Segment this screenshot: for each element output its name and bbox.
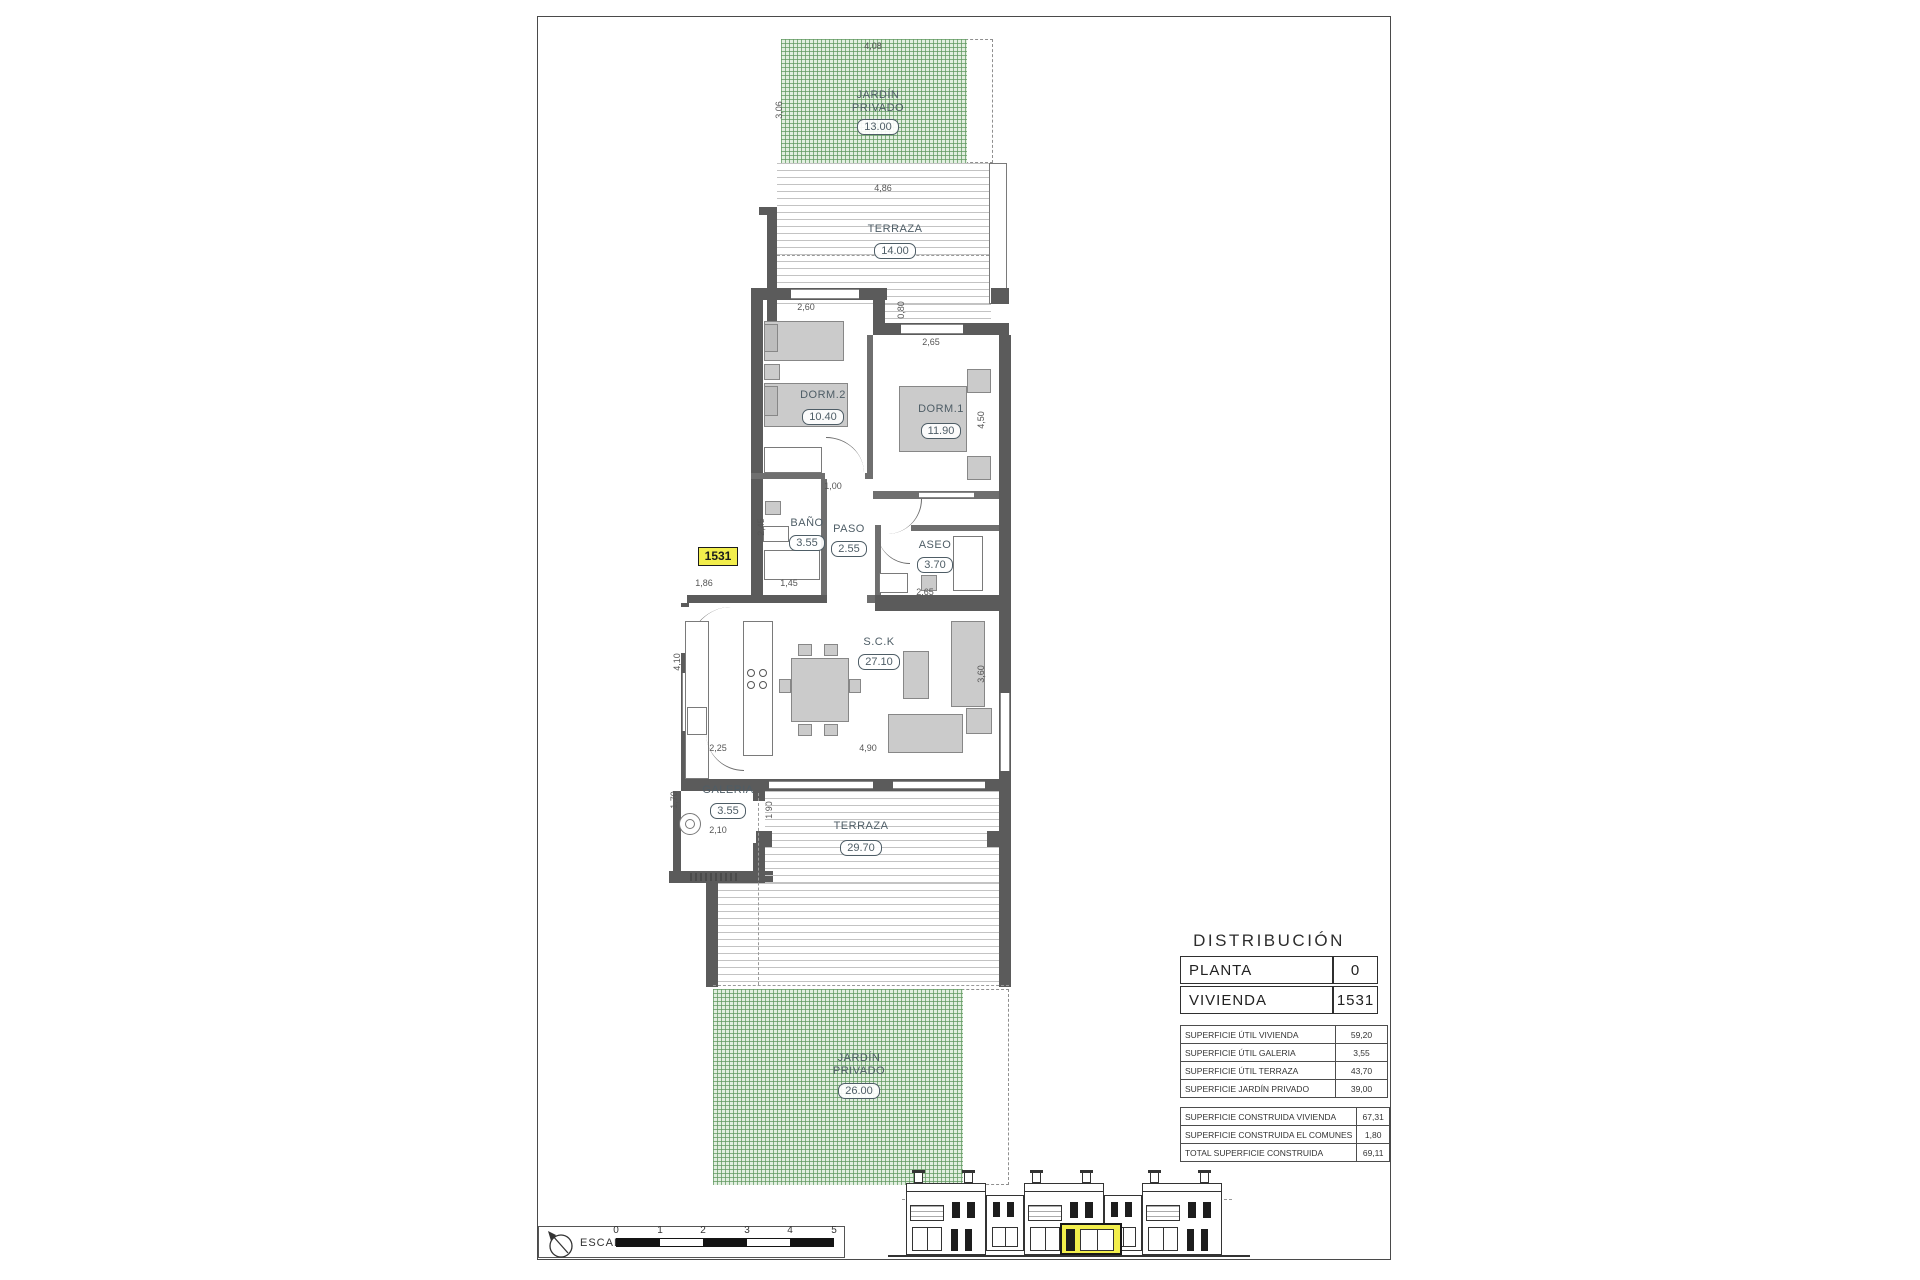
highlight-window-divider xyxy=(1097,1229,1098,1251)
dim-terrace-top-width: 4,86 xyxy=(841,183,925,193)
table-cell-label: TOTAL SUPERFICIE CONSTRUIDA xyxy=(1181,1144,1357,1162)
dorm1-window xyxy=(901,324,963,334)
kitchen-counter xyxy=(685,621,709,779)
dim-terrace-edge: 0,80 xyxy=(896,295,906,325)
scale-bar-segment xyxy=(703,1239,746,1246)
dorm2-bench xyxy=(764,447,822,473)
dorm2-bottom-wall xyxy=(751,473,825,479)
terrace-right-column xyxy=(991,288,1009,304)
chimney-cap xyxy=(1080,1170,1093,1173)
aseo-top-wall-b xyxy=(911,525,999,531)
table-row: TOTAL SUPERFICIE CONSTRUIDA69,11 xyxy=(1181,1144,1390,1162)
paso-wall-stub xyxy=(867,595,875,603)
table-cell-label: SUPERFICIE CONSTRUIDA EL COMUNES xyxy=(1181,1126,1357,1144)
chimney-cap xyxy=(912,1170,925,1173)
scale-tick: 0 xyxy=(613,1225,619,1236)
scale-tick: 3 xyxy=(744,1225,750,1236)
dim-entry-width: 1,86 xyxy=(684,578,724,588)
sliding-door-1 xyxy=(769,781,873,789)
dim-dorm1-width: 2,65 xyxy=(901,337,961,347)
room-area-terraza-top: 14.00 xyxy=(850,241,940,259)
washing-machine-drum xyxy=(685,819,695,829)
room-label-terraza-top: TERRAZA xyxy=(850,223,940,236)
aseo-bottom-wall xyxy=(875,595,1009,611)
galeria-vent xyxy=(690,873,740,881)
room-area-dorm2: 10.40 xyxy=(783,407,863,425)
dining-chair xyxy=(798,724,812,736)
ground-line xyxy=(888,1255,1250,1257)
scale-tick: 1 xyxy=(657,1225,663,1236)
window xyxy=(1201,1229,1208,1251)
terrace-dashed-bottom xyxy=(713,985,1009,986)
room-area-paso: 2.55 xyxy=(819,539,879,557)
hob-burner xyxy=(747,681,755,689)
window-divider xyxy=(1045,1227,1046,1251)
room-label-jardin-top: JARDÍN PRIVADO xyxy=(838,89,918,115)
galeria-right-wall-b xyxy=(753,843,765,883)
dorm-divider-wall xyxy=(867,335,873,473)
parapet-line xyxy=(1024,1191,1104,1192)
window xyxy=(967,1202,975,1218)
table-cell-label: SUPERFICIE ÚTIL VIVIENDA xyxy=(1181,1026,1336,1044)
dim-garden-top-depth: 3,06 xyxy=(774,95,784,125)
room-label-terraza-main: TERRAZA xyxy=(826,820,896,833)
dorm2-window xyxy=(791,289,859,299)
chimney-cap xyxy=(1030,1170,1043,1173)
left-outer-wall xyxy=(751,288,763,603)
galeria-door-arc xyxy=(706,733,744,771)
dining-chair xyxy=(849,679,861,693)
chimney xyxy=(1150,1172,1159,1183)
table-row: SUPERFICIE CONSTRUIDA VIVIENDA67,31 xyxy=(1181,1108,1390,1126)
scale-bar: 0 1 2 3 4 5 xyxy=(616,1225,834,1253)
room-area-galeria: 3.55 xyxy=(693,801,763,819)
window xyxy=(1085,1202,1093,1218)
balcony xyxy=(1146,1205,1180,1221)
bano-tub xyxy=(764,550,820,580)
scale-tick: 4 xyxy=(787,1225,793,1236)
window xyxy=(965,1229,972,1251)
table-cell-label: SUPERFICIE JARDÍN PRIVADO xyxy=(1181,1080,1336,1098)
chimney xyxy=(1200,1172,1209,1183)
chimney xyxy=(1032,1172,1041,1183)
window xyxy=(993,1202,1000,1217)
balcony xyxy=(910,1205,944,1221)
table-row: SUPERFICIE ÚTIL VIVIENDA59,20 xyxy=(1181,1026,1388,1044)
dining-chair xyxy=(824,644,838,656)
chimney-cap xyxy=(1198,1170,1211,1173)
balcony xyxy=(1028,1205,1062,1221)
dim-living-depth: 3,60 xyxy=(976,659,986,689)
dorm1-nightstand-top xyxy=(967,369,991,393)
dim-living-width: 4,90 xyxy=(846,743,890,753)
window-divider xyxy=(927,1227,928,1251)
dim-bano-depth: 2,45 xyxy=(756,512,766,542)
window xyxy=(1187,1229,1194,1251)
window xyxy=(1070,1202,1078,1218)
window-divider xyxy=(1163,1227,1164,1251)
sofa xyxy=(888,714,963,753)
distribution-title: DISTRIBUCIÓN xyxy=(1178,931,1360,951)
room-area-jardin-bottom: 26.00 xyxy=(819,1081,899,1099)
dorm1-bed xyxy=(899,386,967,452)
window xyxy=(1007,1202,1014,1217)
hob-burner xyxy=(747,669,755,677)
vivienda-label-cell: VIVIENDA xyxy=(1180,986,1333,1014)
room-label-galeria: GALERIA xyxy=(693,784,763,797)
window-divider xyxy=(1123,1227,1124,1247)
table-cell-value: 1,80 xyxy=(1357,1126,1390,1144)
table-cell-label: SUPERFICIE ÚTIL GALERIA xyxy=(1181,1044,1336,1062)
dorm1-bottom-window xyxy=(919,492,974,498)
window xyxy=(952,1202,960,1218)
entry-wall-upper xyxy=(681,603,689,607)
planta-label-cell: PLANTA xyxy=(1180,956,1333,984)
building-elevation xyxy=(888,1169,1250,1259)
north-arrow-icon xyxy=(545,1229,575,1259)
window xyxy=(1188,1202,1196,1218)
parapet-line xyxy=(906,1191,986,1192)
room-label-aseo: ASEO xyxy=(905,539,965,552)
chimney-cap xyxy=(1148,1170,1161,1173)
room-label-dorm2: DORM.2 xyxy=(783,389,863,402)
dining-chair xyxy=(798,644,812,656)
highlight-window xyxy=(1066,1229,1075,1251)
dim-bano-width: 1,45 xyxy=(764,578,814,588)
wall-stub xyxy=(873,288,885,335)
terrace-column-right xyxy=(987,831,1003,847)
bano-toilet xyxy=(765,501,781,515)
table-cell-value: 67,31 xyxy=(1357,1108,1390,1126)
dining-table xyxy=(791,658,849,722)
window-divider xyxy=(1005,1227,1006,1247)
superficie-construida-table: SUPERFICIE CONSTRUIDA VIVIENDA67,31 SUPE… xyxy=(1180,1107,1390,1162)
sliding-door-2 xyxy=(893,781,985,789)
dorm2-bed1-pillow xyxy=(764,324,778,352)
dim-garden-top-width: 4,08 xyxy=(833,41,913,51)
scale-bar-strip xyxy=(616,1238,834,1247)
table-cell-label: SUPERFICIE CONSTRUIDA VIVIENDA xyxy=(1181,1108,1357,1126)
top-terrace-edge xyxy=(989,163,1007,304)
dim-dorm1-depth: 4,50 xyxy=(976,405,986,435)
terrace-left-wall-lower xyxy=(706,883,718,987)
plan-sheet: 4,08 3,06 JARDÍN PRIVADO 13.00 4,86 TERR… xyxy=(537,16,1391,1260)
vivienda-value-cell: 1531 xyxy=(1333,986,1378,1014)
table-row: SUPERFICIE ÚTIL TERRAZA43,70 xyxy=(1181,1062,1388,1080)
table-row: SUPERFICIE CONSTRUIDA EL COMUNES1,80 xyxy=(1181,1126,1390,1144)
kitchen-sink xyxy=(687,707,707,735)
room-area-sck: 27.10 xyxy=(844,652,914,670)
room-area-terraza-main: 29.70 xyxy=(826,838,896,856)
scale-tick: 5 xyxy=(831,1225,837,1236)
dorm2-nightstand xyxy=(764,364,780,380)
table-cell-value: 39,00 xyxy=(1336,1080,1388,1098)
dim-dorm2-width: 2,60 xyxy=(776,302,836,312)
chimney xyxy=(964,1172,973,1183)
table-cell-value: 43,70 xyxy=(1336,1062,1388,1080)
room-label-jardin-bottom: JARDÍN PRIVADO xyxy=(819,1052,899,1078)
hob-burner xyxy=(759,681,767,689)
dining-chair xyxy=(824,724,838,736)
table-cell-value: 59,20 xyxy=(1336,1026,1388,1044)
chimney xyxy=(914,1172,923,1183)
dim-galeria-depth: 1,70 xyxy=(669,785,679,815)
dim-kitchen-depth: 4,10 xyxy=(672,647,682,677)
hob-burner xyxy=(759,669,767,677)
table-row: SUPERFICIE JARDÍN PRIVADO39,00 xyxy=(1181,1080,1388,1098)
scale-tick: 2 xyxy=(700,1225,706,1236)
room-label-sck: S.C.K xyxy=(844,636,914,649)
side-table xyxy=(966,708,992,734)
room-area-jardin-top: 13.00 xyxy=(838,117,918,135)
main-terrace-deck-upper xyxy=(765,791,999,883)
table-cell-value: 3,55 xyxy=(1336,1044,1388,1062)
dining-chair xyxy=(779,679,791,693)
chimney xyxy=(1082,1172,1091,1183)
scale-bar-segment xyxy=(790,1239,833,1246)
window xyxy=(1125,1202,1132,1217)
entry-top-wall xyxy=(687,595,827,603)
window xyxy=(1203,1202,1211,1218)
room-label-dorm1: DORM.1 xyxy=(901,403,981,416)
floor-plan-page: 4,08 3,06 JARDÍN PRIVADO 13.00 4,86 TERR… xyxy=(0,0,1920,1280)
superficie-util-table: SUPERFICIE ÚTIL VIVIENDA59,20 SUPERFICIE… xyxy=(1180,1025,1388,1098)
living-balcony-door xyxy=(1000,693,1010,771)
window xyxy=(951,1229,958,1251)
kitchen-peninsula xyxy=(743,621,773,756)
scale-bar-segment xyxy=(617,1239,660,1246)
dim-aseo-width: 2,65 xyxy=(900,587,950,597)
dorm2-bed2-pillow xyxy=(764,386,778,416)
parapet-line xyxy=(1142,1191,1222,1192)
table-cell-value: 69,11 xyxy=(1357,1144,1390,1162)
dim-hall-opening: 1,00 xyxy=(808,481,858,491)
planta-value-cell: 0 xyxy=(1333,956,1378,984)
dorm1-nightstand-bottom xyxy=(967,456,991,480)
table-cell-label: SUPERFICIE ÚTIL TERRAZA xyxy=(1181,1062,1336,1080)
unit-number-tag: 1531 xyxy=(698,547,738,566)
room-area-aseo: 3.70 xyxy=(905,555,965,573)
window xyxy=(1111,1202,1118,1217)
dorm2-door-arc xyxy=(826,437,864,473)
dorm2-bottom-wall2 xyxy=(865,473,873,479)
terrace-right-wall-lower xyxy=(999,791,1011,987)
terrace-wall-cap xyxy=(759,207,777,215)
room-area-dorm1: 11.90 xyxy=(901,421,981,439)
terrace-dashed-vertical xyxy=(758,793,759,985)
table-row: SUPERFICIE ÚTIL GALERIA3,55 xyxy=(1181,1044,1388,1062)
chimney-cap xyxy=(962,1170,975,1173)
room-label-paso: PASO xyxy=(819,523,879,536)
dim-galeria-width: 2,10 xyxy=(696,825,740,835)
